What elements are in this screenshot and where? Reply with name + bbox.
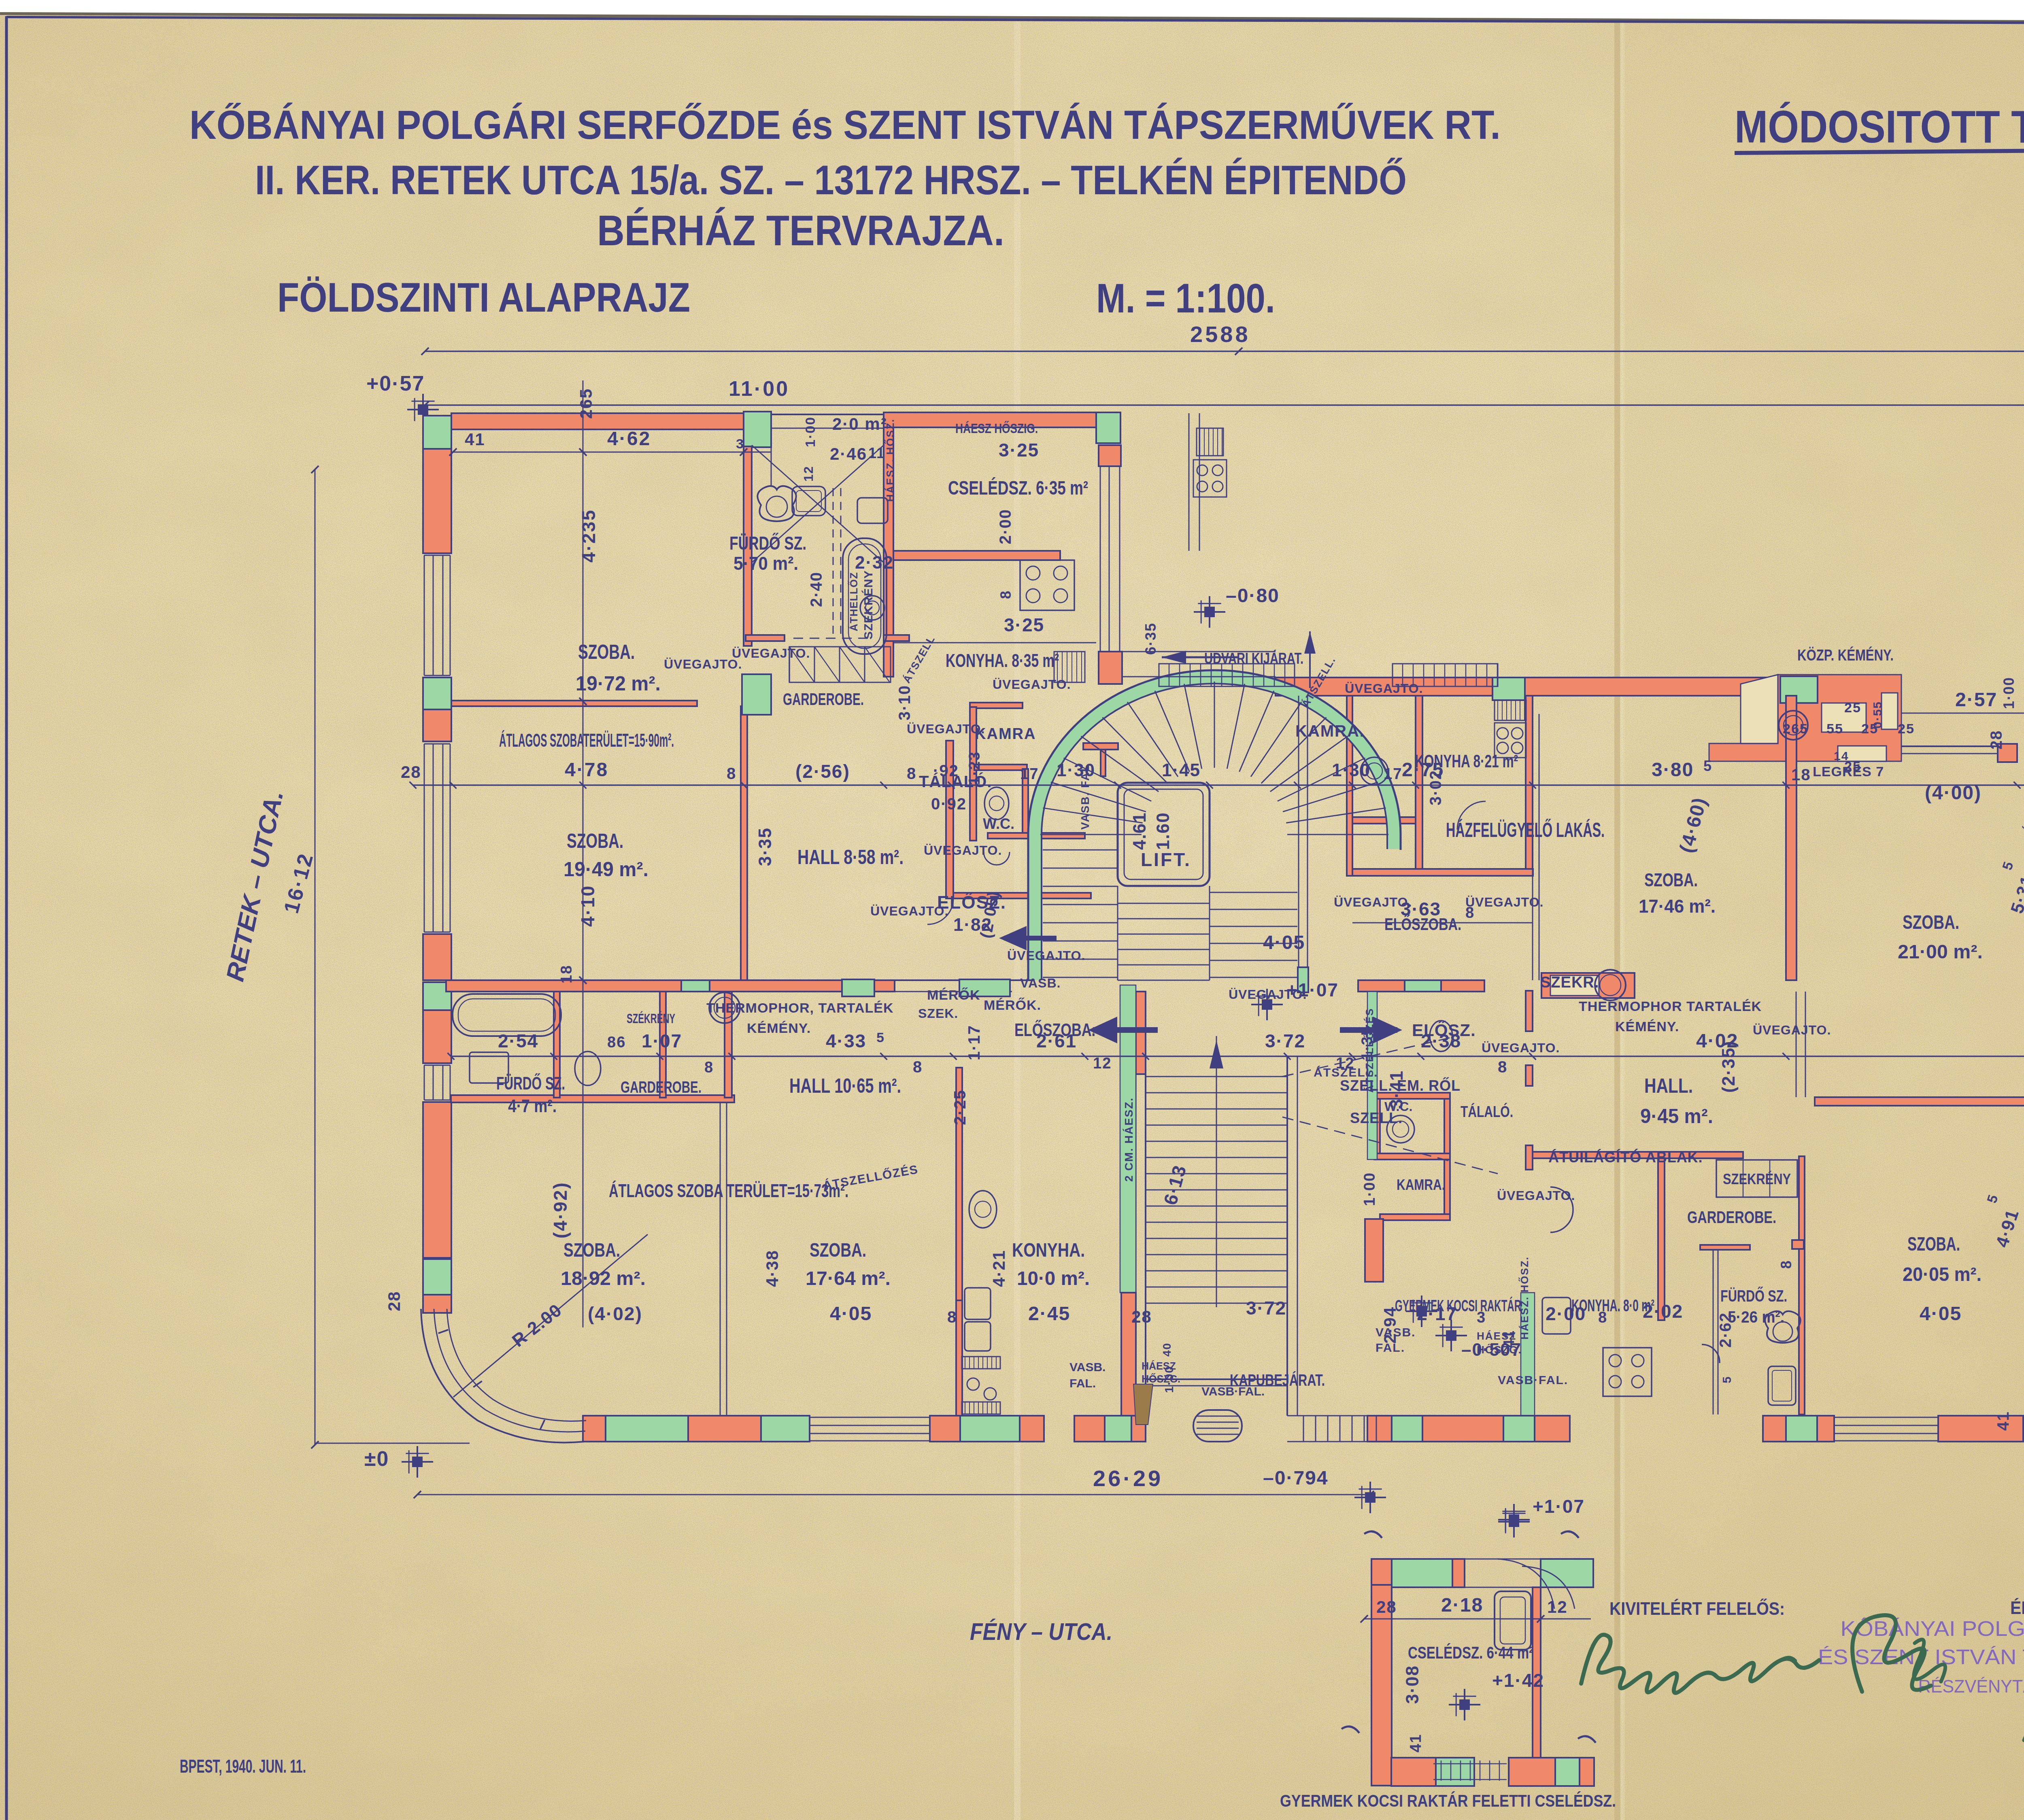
svg-text:HÁESZ. HŐSZ.: HÁESZ. HŐSZ. [1518,1256,1531,1340]
svg-text:265: 265 [1783,721,1808,736]
svg-text:W.C.: W.C. [983,815,1014,832]
svg-text:4·05: 4·05 [1920,1303,1962,1324]
svg-text:ÜVEGAJTO.: ÜVEGAJTO. [1753,1023,1831,1037]
svg-text:2·40: 2·40 [807,571,825,607]
svg-text:8: 8 [947,1308,957,1326]
svg-text:2·54: 2·54 [498,1030,538,1051]
svg-text:ÜVEGAJTO.: ÜVEGAJTO. [993,677,1071,692]
svg-text:2·46: 2·46 [830,444,867,463]
svg-text:17·64 m².: 17·64 m². [806,1268,891,1289]
svg-text:KONYHA.: KONYHA. [1012,1239,1085,1261]
svg-text:5·70 m².: 5·70 m². [733,553,798,574]
svg-text:RÉSZVÉNYTÁRSASÁG: RÉSZVÉNYTÁRSASÁG [1918,1676,2024,1696]
svg-text:SZELL. EM. RŐL: SZELL. EM. RŐL [1340,1077,1461,1094]
svg-text:CSELÉDSZ. 6·35 m²: CSELÉDSZ. 6·35 m² [948,477,1088,499]
svg-text:20·05 m².: 20·05 m². [1903,1264,1981,1285]
svg-text:FÜRDŐ SZ.: FÜRDŐ SZ. [1720,1287,1787,1305]
svg-text:5: 5 [876,1030,885,1045]
svg-text:+1·42: +1·42 [1492,1670,1544,1691]
svg-text:HÁESZ: HÁESZ [1477,1330,1516,1342]
svg-text:5: 5 [1720,1376,1733,1383]
svg-text:KONYHA. 8·0 m²: KONYHA. 8·0 m² [1571,1296,1654,1315]
svg-text:17: 17 [1020,765,1039,782]
svg-text:8: 8 [913,1058,923,1076]
svg-text:4·78: 4·78 [565,759,608,780]
svg-text:28: 28 [1987,730,2005,750]
svg-text:HALL 10·65 m².: HALL 10·65 m². [789,1075,901,1097]
svg-text:TÁLALÓ.: TÁLALÓ. [1461,1103,1513,1120]
svg-text:KAMRA.: KAMRA. [1397,1177,1445,1193]
svg-text:SZOBA.: SZOBA. [567,830,623,852]
svg-text:2·57: 2·57 [1955,689,1997,710]
svg-text:FAL.: FAL. [1069,1376,1096,1390]
svg-text:–0·794: –0·794 [1263,1467,1328,1489]
svg-text:28: 28 [1376,1597,1397,1616]
svg-text:KONYHA. 8·35 m²: KONYHA. 8·35 m² [946,650,1059,671]
svg-text:11: 11 [868,445,885,461]
svg-text:HŐSZG.: HŐSZG. [1142,1373,1180,1385]
svg-text:3·25: 3·25 [999,440,1039,461]
svg-text:(4·92): (4·92) [550,1181,571,1238]
svg-text:4·05: 4·05 [1263,932,1305,953]
svg-text:HÁESZ HŐSZIG.: HÁESZ HŐSZIG. [955,420,1038,436]
svg-text:3·72: 3·72 [1246,1298,1286,1319]
svg-text:1·07: 1·07 [642,1030,682,1051]
svg-text:ÜVEGAJTO.: ÜVEGAJTO. [1465,895,1544,909]
svg-text:ÜVEGAJTO.: ÜVEGAJTO. [907,722,985,736]
svg-text:VASB.: VASB. [1069,1360,1106,1374]
svg-text:2·0 m²: 2·0 m² [832,414,887,433]
svg-text:4·21: 4·21 [989,1250,1008,1287]
svg-text:2 CM. HÁESZ.: 2 CM. HÁESZ. [1123,1097,1135,1182]
svg-text:THERMOPHOR, TARTALÉK: THERMOPHOR, TARTALÉK [706,1000,894,1015]
svg-text:SZÉKRÉNY: SZÉKRÉNY [627,1011,675,1026]
svg-text:GYERMEK KOCSI RAKTÁR: GYERMEK KOCSI RAKTÁR [1395,1297,1521,1315]
svg-text:KONYHA 8·21 m²: KONYHA 8·21 m² [1415,751,1518,771]
svg-text:8: 8 [1778,1260,1794,1269]
svg-text:10·0 m².: 10·0 m². [1017,1268,1090,1289]
svg-text:VASB.: VASB. [1376,1325,1416,1339]
svg-text:HŐSZG.: HŐSZG. [1477,1344,1522,1356]
svg-text:3·10: 3·10 [895,685,913,720]
svg-text:KŐBÁNYAI POLGÁRI SERFŐZDE é: KŐBÁNYAI POLGÁRI SERFŐZDE és SZENT ISTVÁ… [189,102,1501,147]
svg-text:HÁESZ: HÁESZ [1142,1360,1176,1372]
svg-text:18: 18 [1791,766,1811,784]
svg-text:ÁTLAGOS SZOBA TERÜLET=15·73m².: ÁTLAGOS SZOBA TERÜLET=15·73m². [609,1180,848,1201]
svg-text:4·33: 4·33 [826,1030,866,1051]
svg-text:1·45: 1·45 [1162,760,1201,780]
svg-text:HÁESZ. 2: HÁESZ. 2 [2022,781,2024,842]
svg-text:VASB·FAL.: VASB·FAL. [1498,1373,1568,1387]
svg-text:KAPUBEJÁRAT.: KAPUBEJÁRAT. [1230,1371,1325,1389]
svg-text:ÜVEGAJTO.: ÜVEGAJTO. [1007,948,1085,963]
svg-text:FÜRDŐ SZ.: FÜRDŐ SZ. [496,1073,565,1093]
svg-text:14: 14 [1834,749,1849,762]
svg-text:1·00: 1·00 [1361,1172,1378,1206]
svg-text:SZOBA.: SZOBA. [578,641,635,663]
svg-text:19·72 m².: 19·72 m². [576,672,661,695]
svg-text:LIFT.: LIFT. [1141,849,1191,870]
svg-text:25: 25 [1844,700,1861,715]
svg-text:2·00: 2·00 [996,509,1014,544]
svg-text:41: 41 [1407,1734,1424,1752]
svg-text:THERMOPHOR TARTALÉK: THERMOPHOR TARTALÉK [1579,998,1762,1014]
svg-text:5·26 m².: 5·26 m². [1728,1308,1784,1326]
svg-text:12: 12 [1547,1597,1568,1616]
svg-text:21·00 m².: 21·00 m². [1898,941,1983,962]
svg-text:12: 12 [1093,1055,1112,1072]
svg-text:FÖLDSZINTI ALAPRAJZ: FÖLDSZINTI ALAPRAJZ [277,274,690,321]
svg-text:12: 12 [801,465,816,482]
svg-text:SZOBA.: SZOBA. [810,1239,866,1261]
svg-text:VASB. FAL: VASB. FAL [1079,764,1091,830]
svg-text:3·25: 3·25 [1004,614,1044,635]
svg-text:GARDEROBE.: GARDEROBE. [783,690,864,709]
svg-text:ÉPITTETŐ:: ÉPITTETŐ: [2010,1598,2024,1618]
svg-text:VASB.: VASB. [1020,976,1061,990]
svg-text:BPEST, 1940. JUN. 11.: BPEST, 1940. JUN. 11. [180,1756,306,1777]
svg-text:41: 41 [465,430,485,449]
svg-text:TÁLALÓ.: TÁLALÓ. [919,772,992,790]
svg-text:SZOBA.: SZOBA. [1644,869,1698,890]
svg-text:KAMRA.: KAMRA. [1295,722,1365,740]
svg-text:2·25: 2·25 [951,1089,969,1125]
svg-text:KIVITELÉRT FELELŐS:: KIVITELÉRT FELELŐS: [1609,1599,1785,1618]
svg-text:ELŐSZOBA.: ELŐSZOBA. [1384,915,1461,934]
svg-text:ÁTSZELL.: ÁTSZELL. [1314,1066,1378,1079]
svg-text:ÜVEGAJTO.: ÜVEGAJTO. [870,904,948,918]
svg-text:HÁZFELÜGYELŐ LAKÁS.: HÁZFELÜGYELŐ LAKÁS. [1446,819,1605,841]
svg-text:3·35: 3·35 [755,827,775,866]
svg-text:2·32: 2·32 [855,552,894,572]
svg-text:HALL 8·58 m².: HALL 8·58 m². [797,846,904,869]
svg-text:GARDEROBE.: GARDEROBE. [621,1078,702,1096]
svg-text:8: 8 [704,1059,714,1076]
svg-text:ÜVEGAJTO.: ÜVEGAJTO. [1229,987,1307,1002]
svg-text:8: 8 [907,765,916,782]
svg-text:CSELÉDSZ. 6·44 m²: CSELÉDSZ. 6·44 m² [1408,1643,1533,1662]
svg-text:ÜVEGAJTO.: ÜVEGAJTO. [924,843,1002,858]
svg-text:M. = 1:100.: M. = 1:100. [1096,275,1275,321]
svg-text:1·00: 1·00 [2001,677,2017,709]
svg-text:SZEKRÉNY: SZEKRÉNY [1723,1171,1791,1187]
svg-text:HÁESZ. HŐSZ.: HÁESZ. HŐSZ. [884,418,896,502]
svg-text:MÓDOSITOTT TERV.: MÓDOSITOTT TERV. [1735,101,2024,152]
svg-text:1·17: 1·17 [965,1025,983,1060]
svg-text:2·18: 2·18 [1441,1594,1483,1616]
svg-text:SZELL.: SZELL. [1350,1110,1403,1126]
svg-text:FAL.: FAL. [1376,1341,1405,1354]
svg-text:18: 18 [558,965,575,983]
svg-text:3·08: 3·08 [1402,1665,1422,1704]
svg-text:ÜVEGAJTO.: ÜVEGAJTO. [664,657,742,671]
svg-text:SZOBA.: SZOBA. [563,1239,620,1261]
svg-text:HALL.: HALL. [1644,1075,1693,1097]
svg-text:0·92: 0·92 [931,795,967,813]
svg-text:5: 5 [1703,758,1712,774]
svg-text:4·235: 4·235 [578,509,599,563]
svg-text:SZEKRÉNY: SZEKRÉNY [861,570,875,639]
svg-text:0·55: 0·55 [1871,701,1884,728]
svg-text:ÜVEGAJTO.: ÜVEGAJTO. [1345,681,1423,696]
svg-text:(4·00): (4·00) [1925,782,1981,803]
svg-text:ÜVEGAJTO.: ÜVEGAJTO. [1334,895,1412,909]
svg-text:265: 265 [576,388,595,419]
svg-text:II. KER. RETEK UTCA 15/a. S: II. KER. RETEK UTCA 15/a. SZ. – 13172 HR… [255,157,1407,203]
svg-text:ÁTUILÁGÍTÓ ABLAK.: ÁTUILÁGÍTÓ ABLAK. [1548,1149,1703,1166]
svg-text:ÜVEGAJTO.: ÜVEGAJTO. [732,646,810,660]
svg-text:86: 86 [607,1034,626,1051]
svg-text:–0·80: –0·80 [1226,585,1280,606]
svg-text:18·92 m².: 18·92 m². [561,1268,646,1289]
svg-text:3·02: 3·02 [1427,770,1444,805]
svg-text:1.60: 1.60 [1153,812,1173,850]
svg-text:41: 41 [1994,1411,2012,1431]
svg-text:ELŐSZ.: ELŐSZ. [1412,1021,1476,1040]
svg-text:GYERMEK KOCSI RAKTÁR FELETTI C: GYERMEK KOCSI RAKTÁR FELETTI CSELÉDSZ. [1280,1791,1616,1810]
svg-text:40: 40 [1161,1342,1173,1357]
svg-text:28: 28 [1131,1307,1152,1326]
svg-text:MÉRŐK.: MÉRŐK. [984,997,1041,1013]
svg-text:25: 25 [1898,721,1915,736]
svg-text:4·62: 4·62 [607,428,651,449]
svg-text:3·72: 3·72 [1265,1030,1305,1051]
svg-text:±0: ±0 [364,1447,389,1470]
svg-text:3·80: 3·80 [1652,759,1694,780]
svg-text:ÁTHELLŐZ: ÁTHELLŐZ [848,572,860,631]
svg-text:+0·57: +0·57 [366,372,425,395]
svg-text:GARDEROBE.: GARDEROBE. [1687,1208,1776,1227]
svg-text:KÉMÉNY.: KÉMÉNY. [747,1020,811,1036]
svg-text:(4·02): (4·02) [588,1303,642,1324]
svg-text:FÉNY – UTCA.: FÉNY – UTCA. [970,1618,1112,1645]
svg-text:17·46 m².: 17·46 m². [1639,896,1716,917]
svg-text:17: 17 [1384,765,1402,782]
svg-text:3: 3 [736,436,744,451]
svg-text:11·00: 11·00 [729,377,789,400]
svg-text:19·49 m².: 19·49 m². [563,858,648,881]
svg-text:1·00: 1·00 [802,416,818,447]
svg-text:(2·35): (2·35) [1718,1041,1738,1093]
svg-text:MÉRŐK: MÉRŐK [927,987,980,1002]
svg-text:28: 28 [401,762,421,782]
svg-text:ÜVEGAJTO.: ÜVEGAJTO. [1497,1188,1575,1203]
svg-text:KÉMÉNY.: KÉMÉNY. [1615,1019,1679,1034]
svg-text:ÁTLAGOS SZOBATERÜLET=15·90m².: ÁTLAGOS SZOBATERÜLET=15·90m². [499,730,674,751]
svg-text:2·45: 2·45 [1028,1303,1070,1324]
svg-text:(2·56): (2·56) [795,761,850,782]
svg-text:8: 8 [727,765,736,782]
svg-text:8: 8 [997,590,1014,599]
svg-text:KÖZP. KÉMÉNY.: KÖZP. KÉMÉNY. [1797,646,1894,664]
svg-text:BÉRHÁZ TERVRAJZA.: BÉRHÁZ TERVRAJZA. [597,206,1004,254]
svg-text:55: 55 [1826,721,1843,736]
svg-text:1·30: 1·30 [1332,760,1371,780]
svg-text:4.61: 4.61 [1129,812,1149,850]
svg-text:SZOBA.: SZOBA. [1903,911,1959,933]
svg-text:28: 28 [385,1291,404,1311]
svg-text:UDVARI KIJÁRAT.: UDVARI KIJÁRAT. [1204,650,1303,667]
svg-text:26·29: 26·29 [1093,1465,1163,1491]
svg-text:SZEK.: SZEK. [918,1006,958,1021]
svg-text:2588: 2588 [1190,321,1250,347]
svg-text:SZEKR.: SZEKR. [1540,974,1599,991]
svg-text:4·7 m².: 4·7 m². [508,1096,557,1116]
svg-text:FÜRDŐ SZ.: FÜRDŐ SZ. [729,533,806,554]
svg-text:4·05: 4·05 [830,1303,872,1324]
svg-text:ELŐSZOBA.: ELŐSZOBA. [1014,1020,1095,1040]
svg-text:+1·07: +1·07 [1533,1496,1585,1517]
svg-text:8: 8 [1498,1058,1507,1076]
svg-text:4·10: 4·10 [577,885,598,927]
svg-text:6·35: 6·35 [1142,622,1159,655]
svg-text:ÜVEGAJTO.: ÜVEGAJTO. [1482,1041,1560,1055]
svg-text:SZOBA.: SZOBA. [1907,1233,1960,1255]
svg-text:4·38: 4·38 [763,1250,782,1287]
svg-text:9·45 m².: 9·45 m². [1640,1105,1713,1128]
